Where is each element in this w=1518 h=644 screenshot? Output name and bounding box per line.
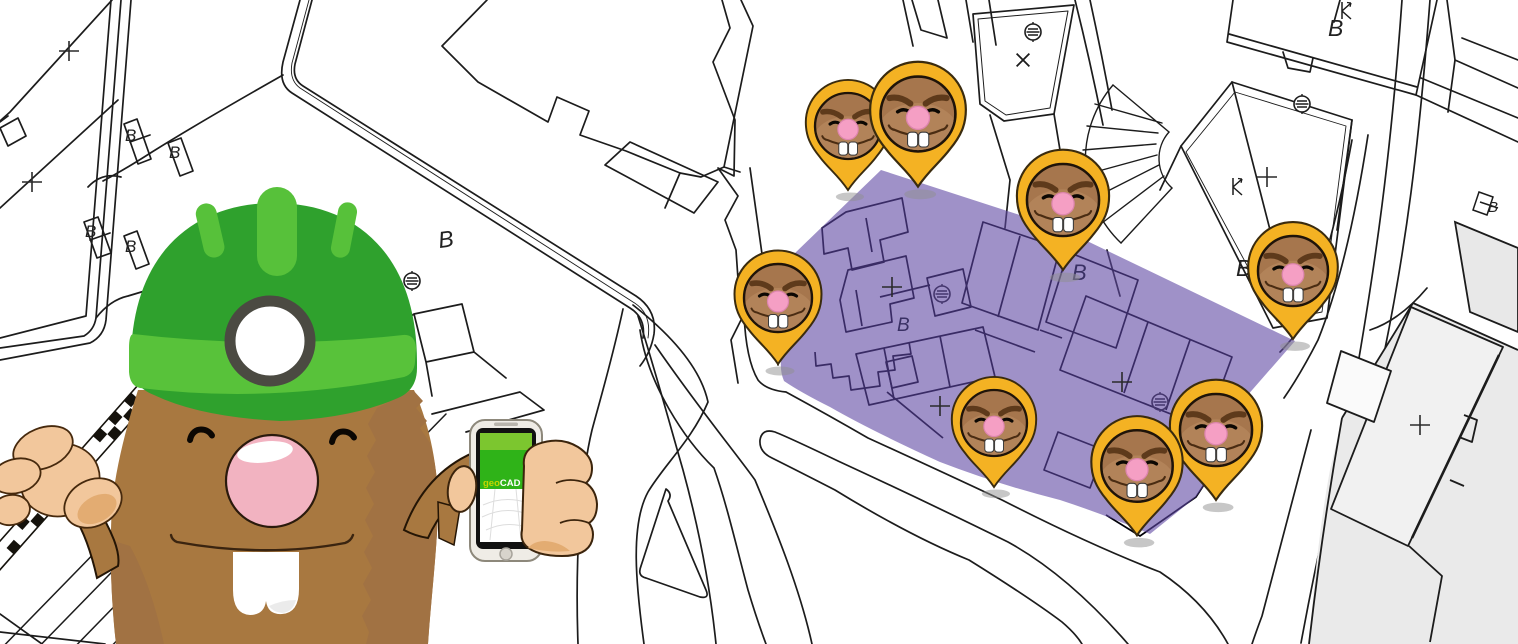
svg-text:B: B bbox=[1328, 15, 1343, 41]
svg-text:B: B bbox=[125, 126, 136, 145]
svg-text:B: B bbox=[125, 237, 136, 256]
svg-text:B: B bbox=[1488, 199, 1498, 216]
svg-text:geoCAD: geoCAD bbox=[483, 478, 521, 489]
svg-text:B: B bbox=[1072, 260, 1087, 285]
svg-text:B: B bbox=[169, 143, 180, 162]
svg-text:B: B bbox=[85, 222, 96, 241]
svg-text:B: B bbox=[897, 315, 910, 336]
